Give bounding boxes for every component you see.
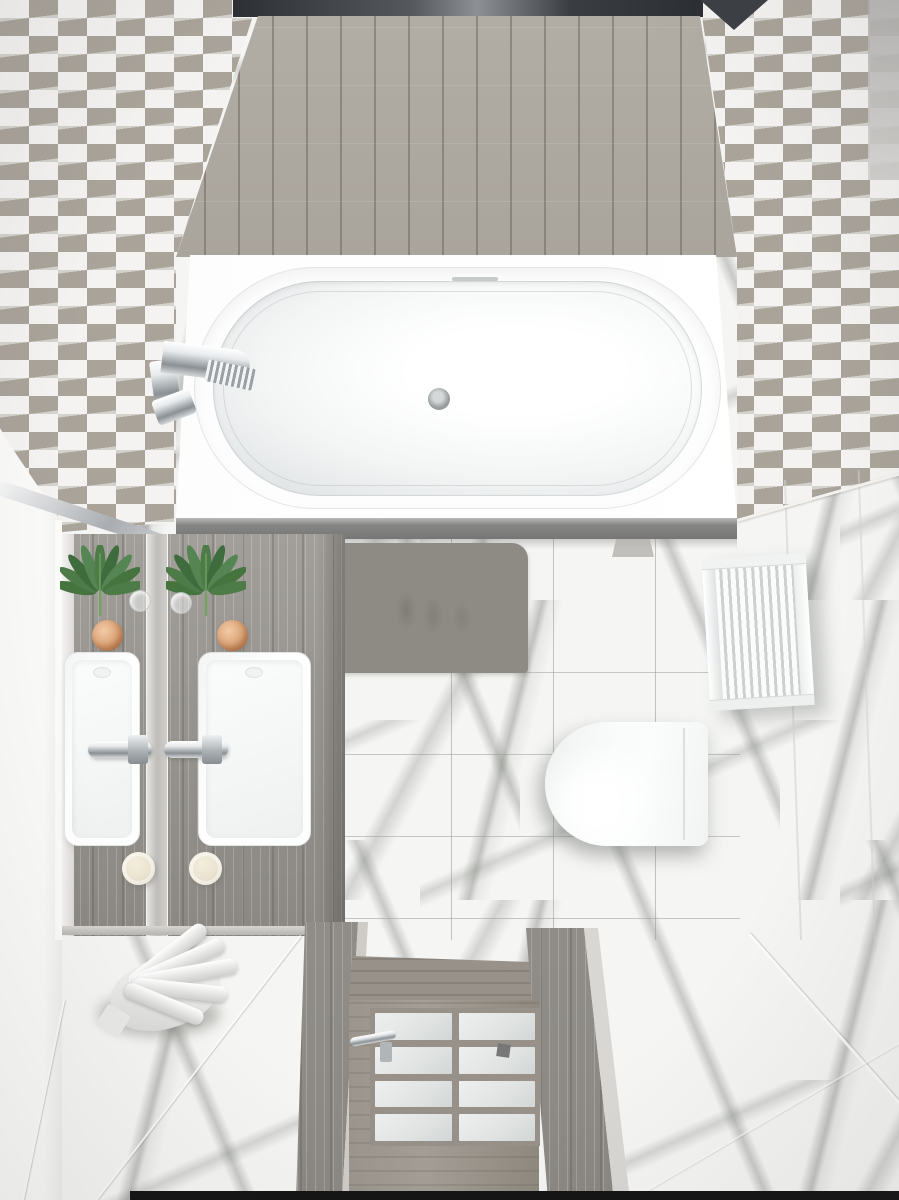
glass-vase [170,592,192,614]
toilet-lid-seam [683,728,685,840]
monstera-plant [60,545,140,621]
door-handle-base [380,1042,392,1062]
sink-overflow-hole [93,667,111,678]
sink-faucet-body [128,735,148,764]
ceiling-dark-beam [233,0,703,17]
door-glass-grid [370,1008,540,1146]
bathtub-basin [213,281,702,496]
bathtub-leg [612,539,654,557]
glass-pane [459,1114,536,1141]
bathtub-drain [428,388,450,410]
sink-faucet-body [202,735,222,764]
copper-candle [217,620,248,651]
bathroom-render [0,0,899,1200]
glass-pane [459,1081,536,1108]
toilet [545,722,708,846]
marble-wall-left [0,418,62,1200]
glass-vase [129,590,151,612]
vanity-counter-shadow [318,534,345,936]
towel [92,930,242,1055]
glass-pane [375,1114,452,1141]
towel-radiator [701,553,814,711]
copper-candle [92,620,123,651]
cream-candle [122,852,155,885]
tub-faucet [152,336,268,428]
bathtub-rim-line [223,291,692,486]
bath-mat [338,543,528,673]
sink-overflow-hole [245,667,263,678]
wall-corner-column [868,0,899,180]
glass-pane [459,1013,536,1040]
image-bottom-edge [130,1191,899,1200]
glass-pane [375,1081,452,1108]
cream-candle [189,852,222,885]
radiator-fins [714,564,802,701]
door-glass-speck [496,1043,511,1058]
bathtub-overflow-slot [452,277,498,281]
